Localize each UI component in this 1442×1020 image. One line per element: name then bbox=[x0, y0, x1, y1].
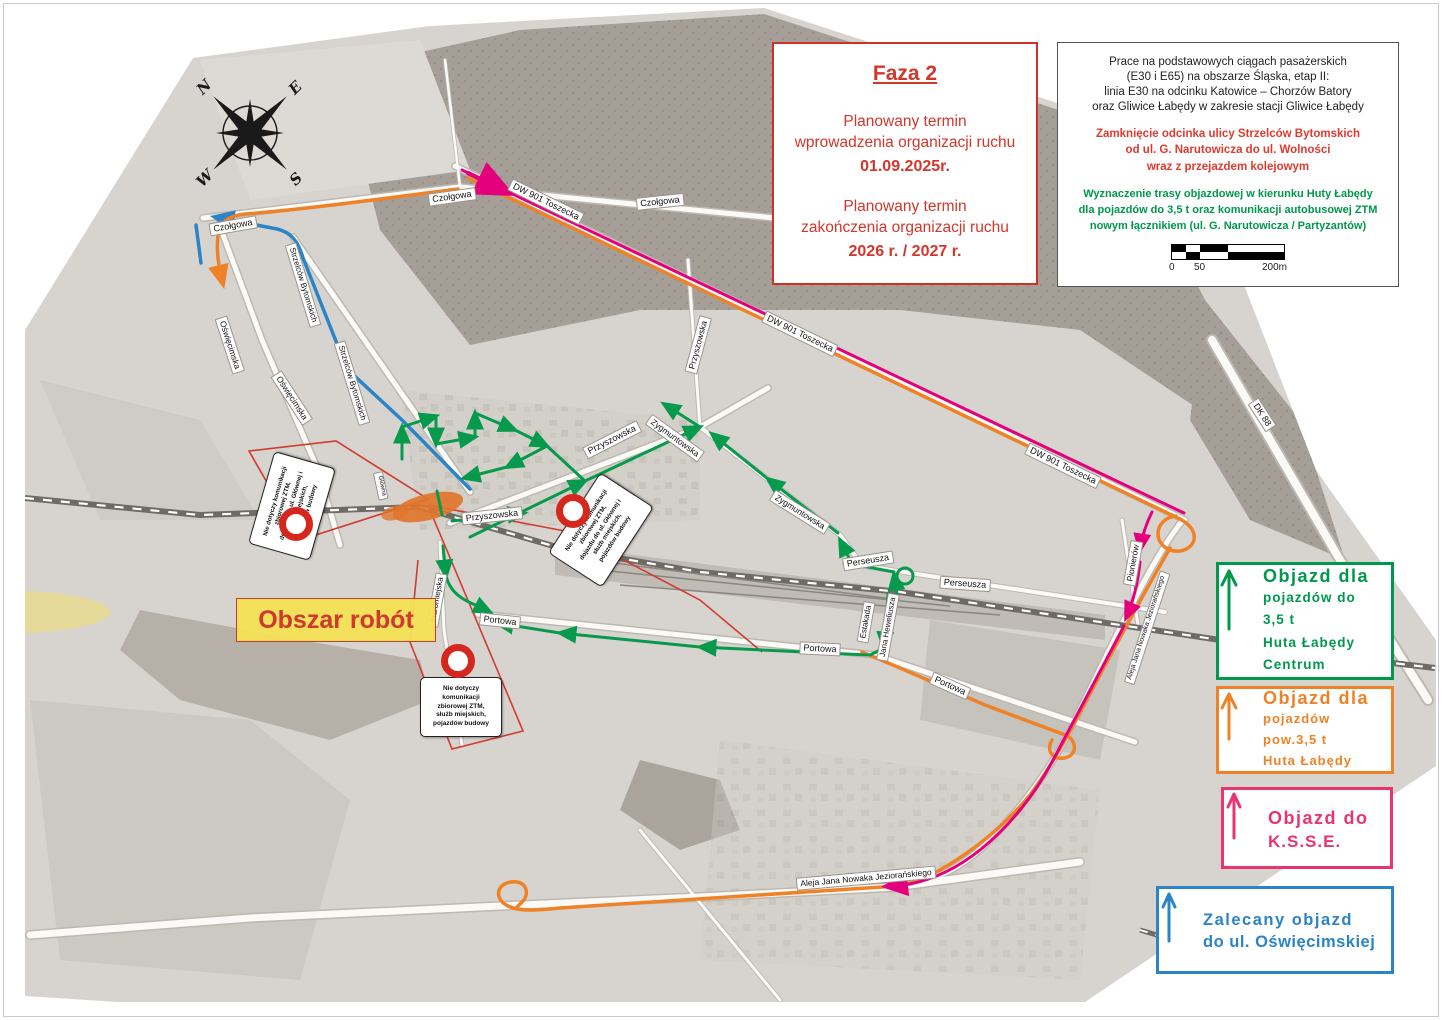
legend-title: Zalecany objazd bbox=[1203, 908, 1375, 933]
phase-line: Planowany termin bbox=[774, 112, 1036, 133]
project-info-box: Prace na podstawowych ciągach pasażerski… bbox=[1057, 42, 1399, 287]
phase-info-box: Faza 2 Planowany termin wprowadzenia org… bbox=[772, 42, 1038, 285]
legend-line: K.S.S.E. bbox=[1268, 832, 1369, 852]
closure-notice: Zamknięcie odcinka ulicy Strzelców Bytom… bbox=[1058, 126, 1398, 176]
work-area-label: Obszar robót bbox=[236, 598, 436, 642]
scale-zero: 0 bbox=[1169, 262, 1175, 273]
legend-line: do ul. Oświęcimskiej bbox=[1203, 933, 1375, 952]
phase-start-date: 01.09.2025r. bbox=[774, 154, 1036, 180]
no-entry-icon bbox=[441, 644, 475, 678]
no-entry-icon bbox=[279, 507, 313, 541]
scale-fifty: 50 bbox=[1194, 262, 1205, 273]
detour-notice: Wyznaczenie trasy objazdowej w kierunku … bbox=[1058, 187, 1398, 235]
scale-max: 200m bbox=[1262, 262, 1287, 273]
legend-detour-over-35t: Objazd dla pojazdów pow.3,5 t Huta Łabęd… bbox=[1216, 686, 1394, 774]
legend-title: Objazd do bbox=[1268, 805, 1369, 832]
legend-detour-ksse: Objazd do K.S.S.E. bbox=[1221, 787, 1393, 869]
phase-line: Planowany termin bbox=[774, 197, 1036, 218]
restriction-callout: Nie dotyczykomunikacjizbiorowej ZTM,służ… bbox=[420, 677, 502, 737]
legend-title: Objazd dla bbox=[1263, 566, 1381, 587]
legend-line: Centrum bbox=[1263, 654, 1381, 676]
project-description: Prace na podstawowych ciągach pasażerski… bbox=[1058, 55, 1398, 115]
street-label: Portowa bbox=[799, 641, 841, 656]
phase-line: zakończenia organizacji ruchu bbox=[774, 218, 1036, 239]
legend-line: pojazdów do 3,5 t bbox=[1263, 587, 1381, 632]
phase-end-date: 2026 r. / 2027 r. bbox=[774, 239, 1036, 265]
legend-title: Objazd dla bbox=[1263, 688, 1381, 709]
legend-detour-oswiecimska: Zalecany objazd do ul. Oświęcimskiej bbox=[1156, 886, 1394, 974]
legend-line: Huta Łabędy bbox=[1263, 632, 1381, 654]
legend-line: pojazdów pow.3,5 t bbox=[1263, 709, 1381, 751]
legend-detour-35t: Objazd dla pojazdów do 3,5 t Huta Łabędy… bbox=[1216, 562, 1394, 680]
legend-line: Huta Łabędy bbox=[1263, 751, 1381, 772]
phase-line: wprowadzenia organizacji ruchu bbox=[774, 133, 1036, 154]
phase-title: Faza 2 bbox=[774, 62, 1036, 86]
map-scale-bar: 0 50 200m bbox=[1163, 244, 1293, 274]
no-entry-icon bbox=[556, 494, 590, 528]
